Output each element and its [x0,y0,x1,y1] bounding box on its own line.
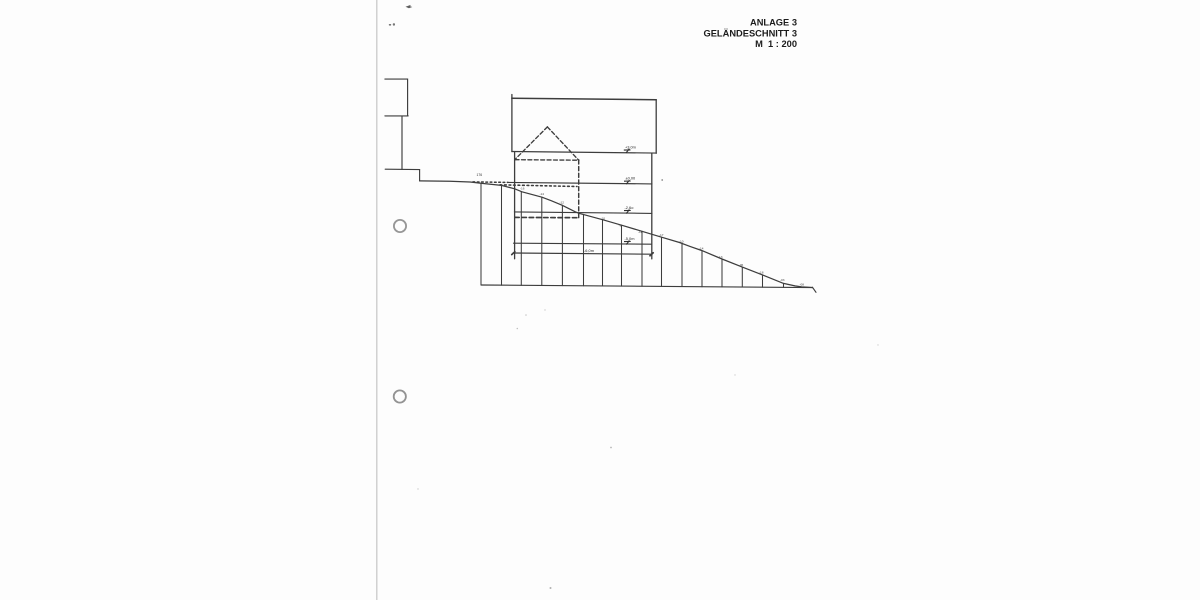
svg-text:-03: -03 [780,278,785,282]
svg-text:-10: -10 [601,216,606,220]
svg-text:-13: -13 [718,255,723,259]
svg-text:+3,0m: +3,0m [625,144,636,149]
svg-text:176: 176 [477,173,483,177]
svg-text:-12: -12 [560,201,565,205]
svg-text:-6,0m: -6,0m [584,248,594,253]
svg-text:-14: -14 [699,247,704,251]
svg-text:±0,00: ±0,00 [626,175,637,180]
svg-text:GELÄNDESCHNITT 3: GELÄNDESCHNITT 3 [704,28,798,38]
svg-text:-08: -08 [800,283,805,287]
svg-text:ANLAGE 3: ANLAGE 3 [750,18,797,28]
svg-text:-2,6o: -2,6o [625,205,634,210]
svg-text:-06: -06 [739,263,744,267]
svg-text:-10: -10 [679,239,684,243]
svg-text:-14: -14 [540,192,545,196]
svg-text:-16: -16 [520,187,525,191]
svg-text:-18: -18 [759,271,764,275]
svg-text:-5,0m: -5,0m [625,236,635,241]
svg-text:M 1 : 200: M 1 : 200 [755,39,797,49]
svg-text:-17: -17 [659,233,664,237]
svg-text:-18: -18 [638,230,643,234]
svg-text:-9: -9 [619,224,622,228]
